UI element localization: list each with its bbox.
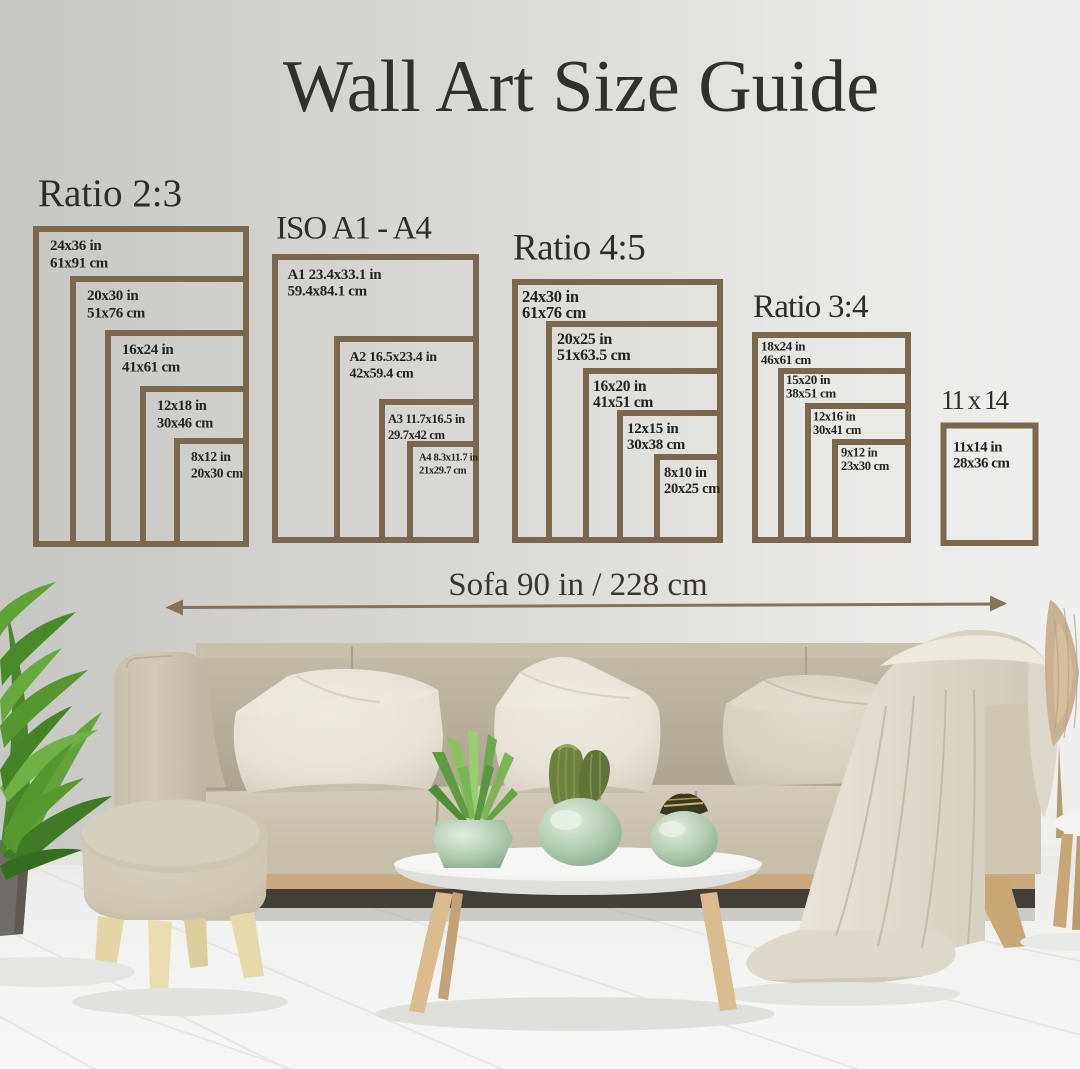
svg-text:Ratio 3:4: Ratio 3:4	[753, 289, 868, 325]
svg-text:23x30 cm: 23x30 cm	[841, 459, 890, 473]
svg-text:8x12 in: 8x12 in	[191, 449, 231, 464]
svg-text:28x36 cm: 28x36 cm	[953, 456, 1010, 472]
svg-text:12x16 in: 12x16 in	[813, 410, 856, 424]
svg-text:41x61 cm: 41x61 cm	[122, 360, 181, 376]
svg-text:51x63.5 cm: 51x63.5 cm	[557, 347, 631, 364]
svg-text:Ratio 4:5: Ratio 4:5	[513, 228, 645, 269]
svg-text:A2 16.5x23.4 in: A2 16.5x23.4 in	[350, 350, 438, 365]
svg-text:9x12 in: 9x12 in	[841, 446, 878, 460]
svg-text:20x25 cm: 20x25 cm	[664, 481, 720, 497]
svg-text:Sofa 90 in / 228 cm: Sofa 90 in / 228 cm	[448, 567, 708, 603]
svg-text:61x91 cm: 61x91 cm	[50, 256, 109, 272]
svg-text:ISO A1 - A4: ISO A1 - A4	[276, 211, 431, 247]
svg-text:16x24 in: 16x24 in	[122, 342, 174, 358]
svg-text:11x14 in: 11x14 in	[953, 440, 1003, 456]
svg-text:30x46 cm: 30x46 cm	[157, 416, 213, 432]
svg-text:46x61 cm: 46x61 cm	[761, 352, 811, 367]
svg-text:59.4x84.1 cm: 59.4x84.1 cm	[288, 283, 368, 299]
svg-text:16x20 in: 16x20 in	[593, 378, 647, 395]
svg-text:38x51 cm: 38x51 cm	[786, 386, 836, 401]
svg-text:8x10 in: 8x10 in	[664, 465, 707, 481]
svg-text:61x76 cm: 61x76 cm	[522, 303, 587, 322]
svg-text:20x25 in: 20x25 in	[557, 331, 612, 348]
svg-text:A4 8.3x11.7 in: A4 8.3x11.7 in	[419, 453, 478, 464]
svg-text:A1 23.4x33.1 in: A1 23.4x33.1 in	[288, 267, 383, 283]
svg-text:21x29.7 cm: 21x29.7 cm	[419, 466, 467, 477]
svg-text:51x76 cm: 51x76 cm	[87, 306, 146, 322]
svg-text:Ratio 2:3: Ratio 2:3	[38, 172, 182, 215]
svg-text:41x51 cm: 41x51 cm	[593, 394, 653, 411]
svg-text:11 x 14: 11 x 14	[941, 385, 1009, 415]
svg-text:29.7x42 cm: 29.7x42 cm	[388, 428, 446, 442]
svg-text:Wall Art Size Guide: Wall Art Size Guide	[283, 46, 879, 128]
svg-text:30x38 cm: 30x38 cm	[627, 437, 686, 453]
svg-text:42x59.4 cm: 42x59.4 cm	[350, 366, 415, 381]
svg-text:20x30 in: 20x30 in	[87, 288, 139, 304]
svg-text:12x15 in: 12x15 in	[627, 421, 679, 437]
svg-text:24x36 in: 24x36 in	[50, 238, 102, 254]
svg-text:20x30 cm: 20x30 cm	[191, 466, 244, 481]
svg-text:30x41 cm: 30x41 cm	[813, 423, 862, 437]
svg-text:12x18 in: 12x18 in	[157, 398, 207, 414]
svg-text:A3 11.7x16.5 in: A3 11.7x16.5 in	[388, 412, 465, 426]
